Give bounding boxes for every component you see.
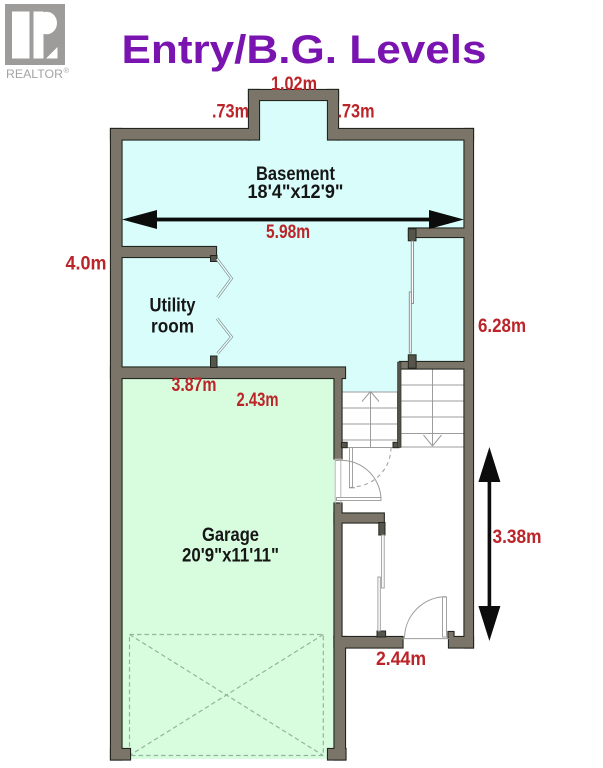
svg-text:Garage: Garage bbox=[202, 525, 259, 546]
svg-text:1.02m: 1.02m bbox=[271, 74, 317, 95]
svg-text:room: room bbox=[151, 317, 194, 338]
svg-text:Utility: Utility bbox=[150, 296, 196, 317]
svg-text:4.0m: 4.0m bbox=[66, 254, 107, 275]
svg-text:5.98m: 5.98m bbox=[266, 222, 310, 243]
svg-text:18'4"x12'9": 18'4"x12'9" bbox=[248, 182, 344, 203]
svg-text:2.44m: 2.44m bbox=[376, 649, 426, 670]
svg-text:20'9"x11'11": 20'9"x11'11" bbox=[182, 546, 279, 567]
svg-text:REALTOR: REALTOR bbox=[6, 69, 63, 81]
svg-text:3.38m: 3.38m bbox=[493, 527, 542, 548]
svg-text:®: ® bbox=[64, 66, 70, 75]
svg-text:.73m: .73m bbox=[212, 102, 249, 123]
svg-text:2.43m: 2.43m bbox=[237, 390, 279, 411]
svg-text:Entry/B.G. Levels: Entry/B.G. Levels bbox=[122, 28, 487, 72]
svg-text:6.28m: 6.28m bbox=[478, 316, 526, 337]
svg-text:3.87m: 3.87m bbox=[172, 375, 217, 396]
svg-text:.73m: .73m bbox=[338, 102, 375, 123]
